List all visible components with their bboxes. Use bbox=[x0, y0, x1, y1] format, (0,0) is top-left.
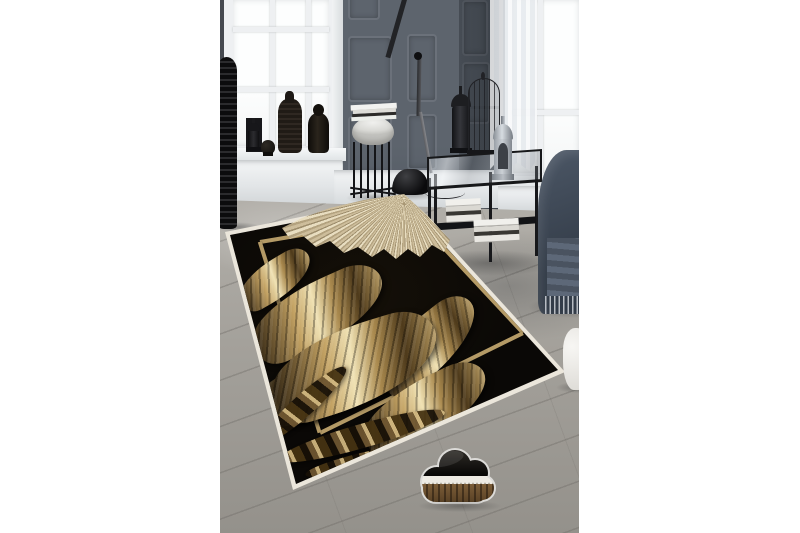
lantern-body bbox=[248, 131, 259, 148]
lamp-joint bbox=[414, 52, 422, 60]
window-muntin bbox=[233, 87, 329, 92]
lantern-arch-window bbox=[498, 143, 508, 169]
product-photo bbox=[220, 0, 579, 533]
cloud-shadow bbox=[418, 500, 502, 512]
figurine-base bbox=[263, 152, 273, 156]
ribbed-vase bbox=[220, 57, 237, 229]
lantern-dome bbox=[493, 124, 513, 140]
moroccan-lantern bbox=[246, 118, 262, 152]
product-photo-canvas bbox=[0, 0, 800, 533]
textured-bottle bbox=[278, 99, 302, 153]
wall-panel bbox=[348, 36, 392, 102]
wall-panel bbox=[348, 0, 380, 20]
bottle-neck bbox=[285, 91, 294, 103]
lamp-dome-base bbox=[392, 169, 429, 195]
buddha-statue bbox=[308, 104, 329, 153]
lantern-foot bbox=[492, 174, 514, 180]
white-planter bbox=[563, 328, 579, 390]
plant-stand-top bbox=[352, 117, 394, 145]
book-stack bbox=[473, 218, 519, 242]
magazine-stack bbox=[351, 103, 398, 121]
window-muntin bbox=[233, 27, 329, 32]
fringed-throw bbox=[547, 238, 579, 296]
cloud-decor bbox=[416, 446, 500, 507]
wall-panel bbox=[462, 0, 488, 56]
wall-panel bbox=[407, 34, 437, 102]
baseboard bbox=[220, 160, 342, 204]
statue-body bbox=[308, 113, 329, 153]
lantern-foot bbox=[246, 147, 262, 151]
window-muntin bbox=[538, 0, 543, 173]
door-frame-trim bbox=[332, 0, 343, 172]
window-muntin bbox=[270, 0, 275, 146]
silver-lantern bbox=[491, 116, 515, 182]
statue-head bbox=[313, 104, 324, 116]
cage-dome bbox=[468, 78, 500, 109]
